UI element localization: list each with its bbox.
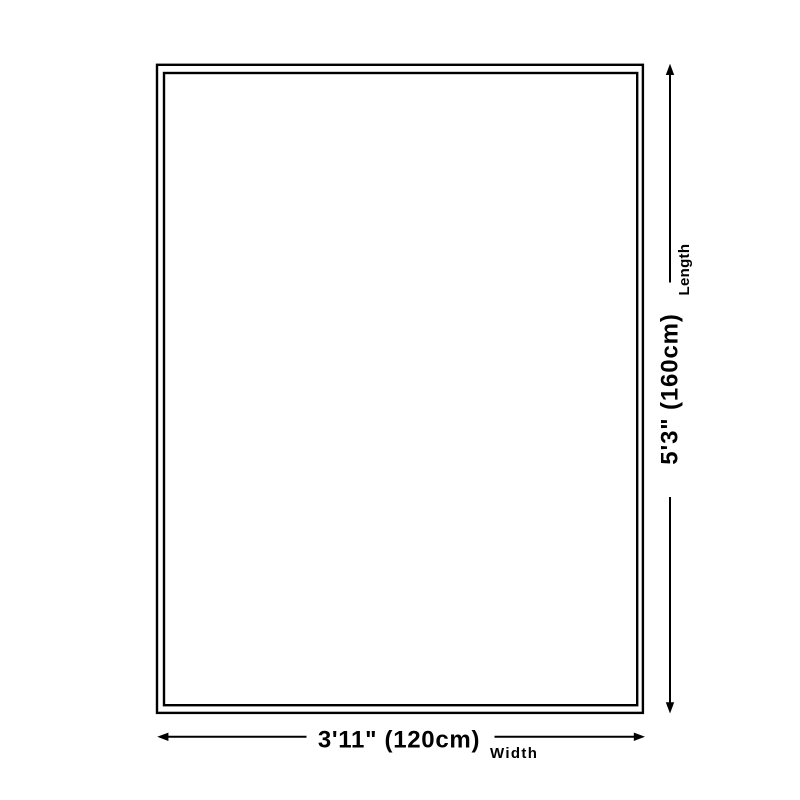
- svg-text:Length: Length: [676, 244, 693, 296]
- svg-text:3'11" (120cm): 3'11" (120cm): [318, 727, 480, 754]
- svg-text:5'3" (160cm): 5'3" (160cm): [656, 313, 683, 464]
- svg-text:Width: Width: [490, 745, 538, 762]
